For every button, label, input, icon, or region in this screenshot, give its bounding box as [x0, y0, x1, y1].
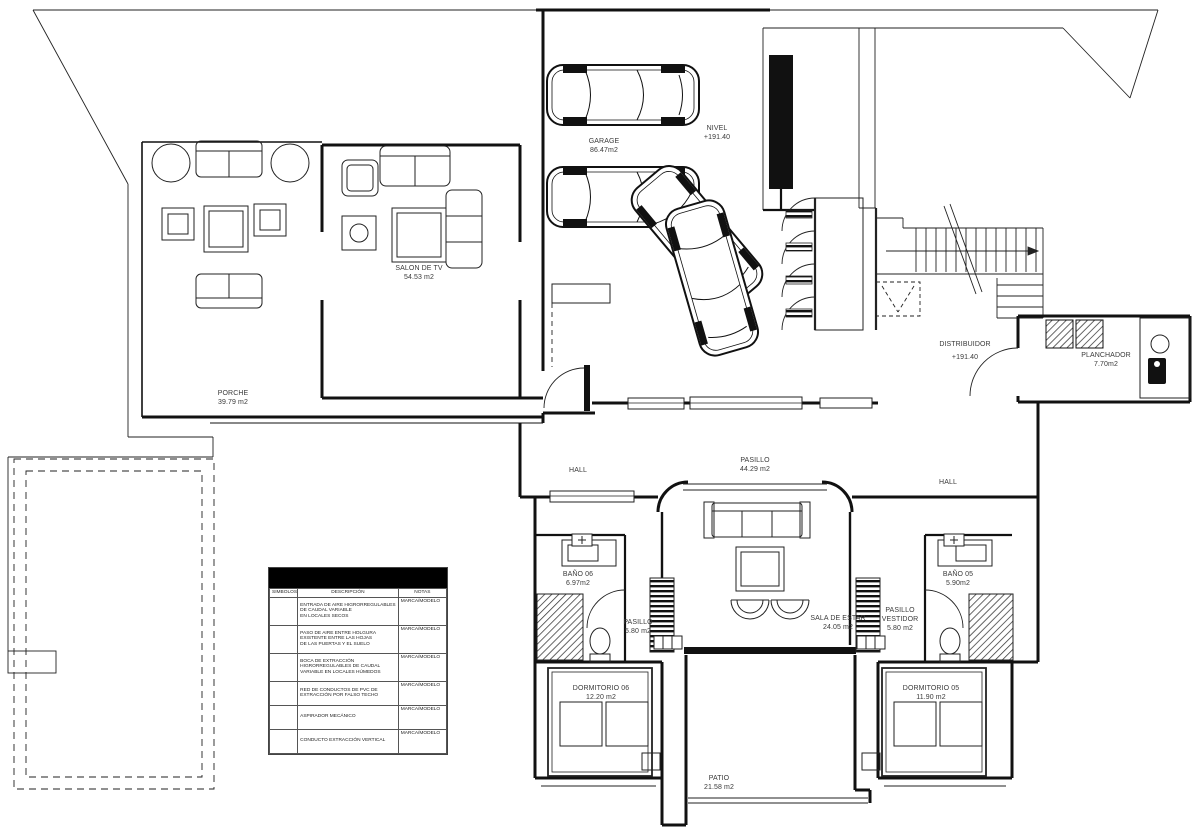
legend-symbol-cell: [270, 625, 298, 653]
legend-desc-cell: CONDUCTO EXTRACCIÓN VERTICAL: [298, 729, 399, 753]
legend-col-simbolos: SIMBOLOS: [270, 589, 298, 598]
louver-closet: [782, 198, 876, 330]
garage-landing: [552, 284, 610, 303]
entrance-door: [543, 365, 595, 413]
legend-symbol-cell: [270, 653, 298, 681]
garage-dark-wall: [769, 55, 793, 189]
laundry-sink-tap: [1154, 361, 1160, 367]
bed-dormitorio-05: [862, 668, 986, 776]
car-icon: [547, 65, 699, 125]
corridor-walls: [520, 397, 1190, 502]
legend-table: SIMBOLOS DESCRIPCIÓN NOTAS ENTRADA DE AI…: [269, 588, 447, 754]
legend-row: BOCA DE EXTRACCIÓN HIGRORREGULABLES DE C…: [270, 653, 447, 681]
legend-row: CONDUCTO EXTRACCIÓN VERTICAL MARCA/MODEL…: [270, 729, 447, 753]
legend-notes-cell: MARCA/MODELO: [398, 625, 446, 653]
bathroom-05: [925, 534, 1013, 662]
legend-desc-cell: ASPIRADOR MECÁNICO: [298, 705, 399, 729]
bed-dormitorio-06: [548, 668, 660, 776]
legend-desc-cell: ENTRADA DE AIRE HIGRORREGULABLES DE CAUD…: [298, 597, 399, 625]
right-wing-walls: [878, 402, 1038, 786]
patio-walls: [662, 655, 870, 825]
legend-notes-cell: MARCA/MODELO: [398, 705, 446, 729]
sala-walls: [658, 482, 852, 645]
legend-header-row: SIMBOLOS DESCRIPCIÓN NOTAS: [270, 589, 447, 598]
salon-furniture: [342, 146, 482, 268]
legend-symbol-cell: [270, 681, 298, 705]
legend-notes-cell: MARCA/MODELO: [398, 597, 446, 625]
legend-row: PASO DE AIRE ENTRE HOLGURA EXISTENTE ENT…: [270, 625, 447, 653]
staircase: [876, 204, 1043, 318]
legend-symbol-cell: [270, 729, 298, 753]
legend-desc-cell: PASO DE AIRE ENTRE HOLGURA EXISTENTE ENT…: [298, 625, 399, 653]
legend-row: RED DE CONDUCTOS DE PVC DE EXTRACCIÓN PO…: [270, 681, 447, 705]
legend-notes-cell: MARCA/MODELO: [398, 681, 446, 705]
symbols-legend: SIMBOLOS DESCRIPCIÓN NOTAS ENTRADA DE AI…: [268, 567, 448, 755]
legend-notes-cell: MARCA/MODELO: [398, 653, 446, 681]
bathroom-06: [537, 534, 625, 662]
legend-row: ENTRADA DE AIRE HIGRORREGULABLES DE CAUD…: [270, 597, 447, 625]
legend-symbol-cell: [270, 705, 298, 729]
legend-symbol-cell: [270, 597, 298, 625]
legend-desc-cell: BOCA DE EXTRACCIÓN HIGRORREGULABLES DE C…: [298, 653, 399, 681]
legend-header-bar: [269, 568, 447, 588]
legend-desc-cell: RED DE CONDUCTOS DE PVC DE EXTRACCIÓN PO…: [298, 681, 399, 705]
porch-furniture: [152, 141, 309, 308]
floor-plan-drawing: [0, 0, 1200, 839]
sala-sill: [684, 647, 856, 654]
sala-furniture: [704, 502, 810, 619]
legend-row: ASPIRADOR MECÁNICO MARCA/MODELO: [270, 705, 447, 729]
legend-col-notas: NOTAS: [398, 589, 446, 598]
floor-plan-sheet: GARAGE86.47m2 NIVEL+191.40 SALON DE TV54…: [0, 0, 1200, 839]
legend-col-descripcion: DESCRIPCIÓN: [298, 589, 399, 598]
legend-notes-cell: MARCA/MODELO: [398, 729, 446, 753]
